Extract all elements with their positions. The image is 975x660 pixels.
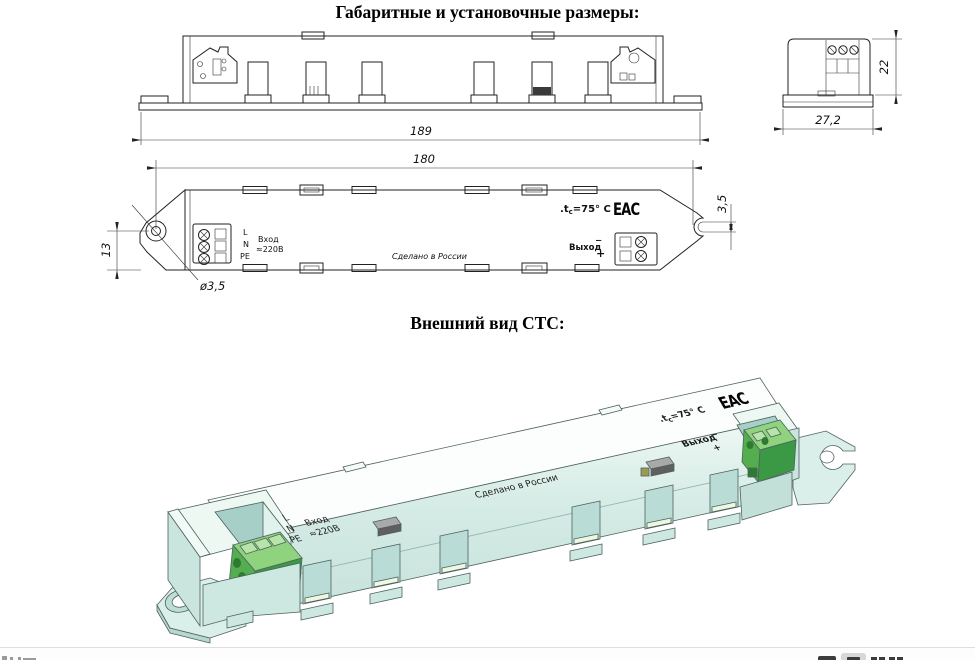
dimension-width: 27,2 [783, 109, 873, 135]
svg-text:22: 22 [877, 60, 891, 75]
label-input: Вход [258, 235, 279, 244]
side-view-terminal [826, 40, 859, 95]
svg-text:27,2: 27,2 [815, 113, 841, 127]
eac-logo: EAC [613, 199, 640, 219]
svg-text:189: 189 [410, 124, 432, 138]
dimension-height: 22 [872, 39, 902, 95]
side-view: 22 27,2 [783, 39, 902, 135]
top-view-clips [245, 62, 611, 103]
page-title-dimensions: Габаритные и установочные размеры: [0, 2, 975, 23]
front-view: L N PE Вход ≈220В Сделано в России .tc=7… [99, 152, 736, 293]
label-output-plus: + [596, 247, 605, 260]
dimension-hole-offset: 13 [99, 231, 149, 270]
page-title-appearance: Внешний вид СТС: [0, 313, 975, 334]
svg-text:180: 180 [413, 152, 435, 166]
label-input-voltage: ≈220В [256, 245, 283, 254]
top-view-input-terminal [193, 47, 237, 83]
label-line: L [243, 228, 248, 237]
front-output-terminal [615, 233, 657, 265]
svg-text:13: 13 [99, 243, 113, 258]
view-mode-icon-1[interactable] [818, 656, 836, 660]
front-input-terminal [193, 224, 231, 265]
statusbar-icon-left-1[interactable] [2, 656, 7, 660]
top-view: 189 [139, 32, 702, 145]
label-made-in: Сделано в России [392, 252, 467, 261]
label-neutral: N [243, 240, 249, 249]
svg-text:ø3,5: ø3,5 [199, 279, 225, 293]
label-output-minus: − [595, 236, 602, 246]
document-page: Габаритные и установочные размеры: [0, 0, 975, 660]
statusbar [0, 647, 975, 660]
top-view-output-terminal [611, 47, 655, 83]
dimension-slot-width: 3,5 [715, 195, 731, 250]
svg-text:3,5: 3,5 [715, 195, 729, 213]
label-tc-marking: .tc=75° C [560, 204, 611, 216]
dimension-overall-length: 189 [141, 112, 700, 145]
device-3d-view: L N PE Вход ≈220В Сделано в России .tc=7… [0, 360, 975, 660]
iso-right-ear [793, 431, 855, 505]
label-pe: PE [240, 252, 250, 261]
dimensional-drawing: 189 22 [0, 28, 975, 313]
dimension-hole-diameter: ø3,5 [132, 205, 225, 293]
